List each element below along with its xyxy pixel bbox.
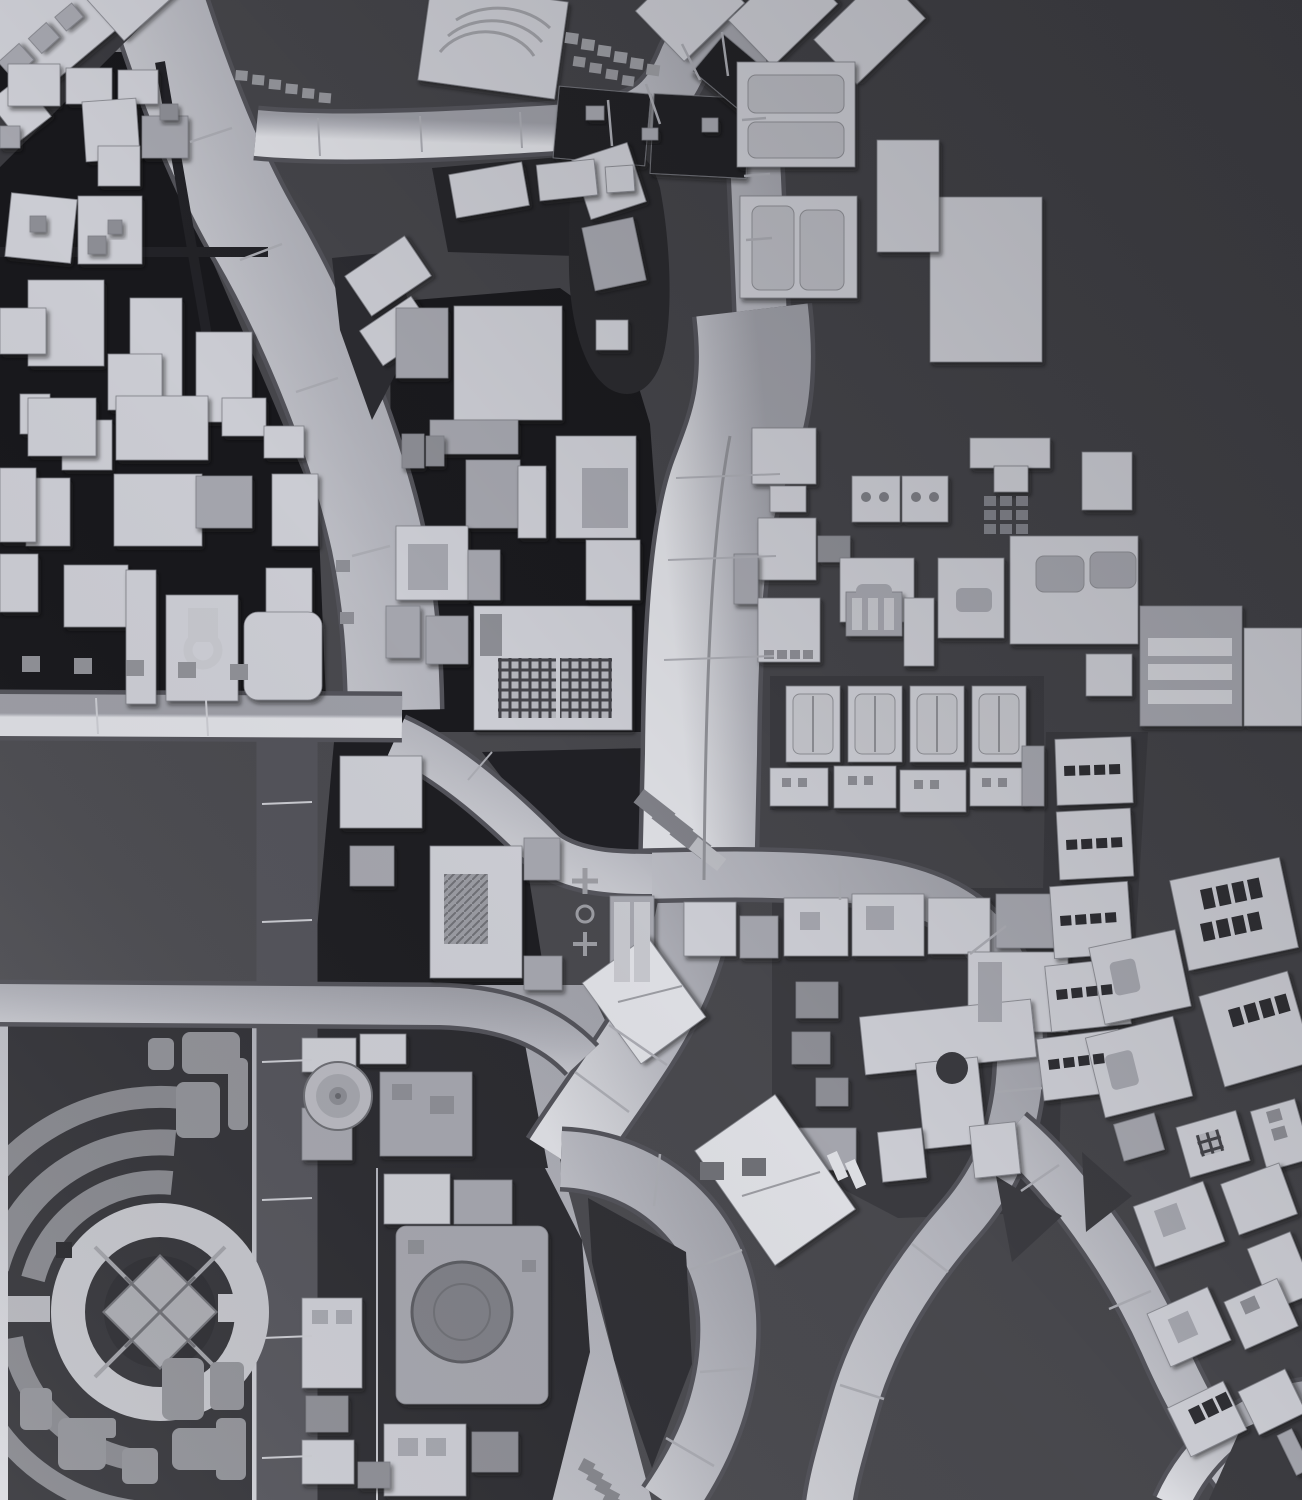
city-render xyxy=(0,0,1302,1500)
light-vignette-overlay xyxy=(0,0,1302,1500)
city-map-svg xyxy=(0,0,1302,1500)
